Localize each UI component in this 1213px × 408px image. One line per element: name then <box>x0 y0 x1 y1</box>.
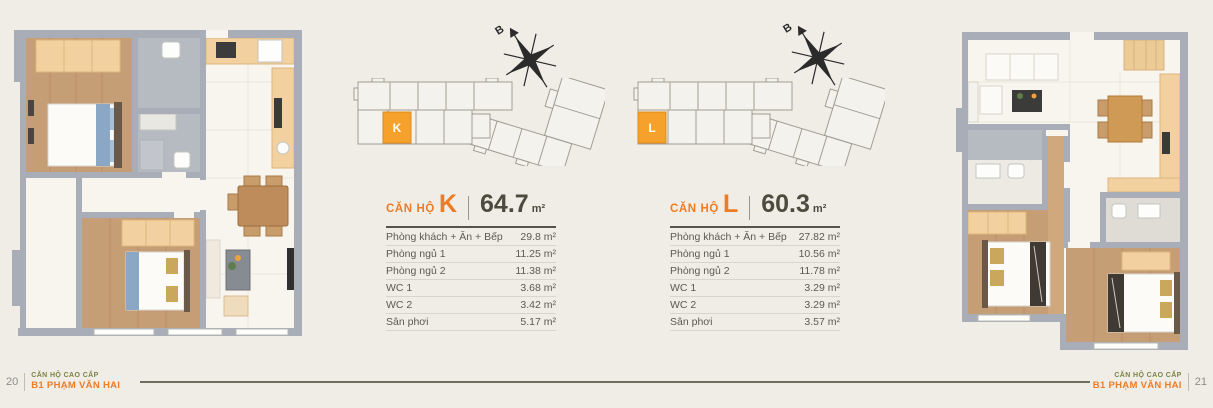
keyplan-unit-letter: K <box>393 121 402 135</box>
room-area: 10.56 m² <box>799 248 840 260</box>
footer-project-name: B1 PHẠM VĂN HAI <box>1093 380 1182 391</box>
room-label: WC 1 <box>670 282 696 294</box>
table-row: WC 13.29 m² <box>670 280 840 297</box>
footer-divider <box>24 373 25 391</box>
keyplan-unit-letter: L <box>648 121 655 135</box>
room-label: Phòng ngủ 1 <box>670 248 730 260</box>
room-area: 3.68 m² <box>520 282 556 294</box>
unit-title: CĂN HỘ L 60.3 m² <box>670 194 840 228</box>
table-row: WC 23.42 m² <box>386 297 556 314</box>
compass-icon: B <box>782 12 852 94</box>
keyplan-unit-marker: K <box>383 112 411 143</box>
room-area: 3.29 m² <box>804 299 840 311</box>
brochure-spread: K B CĂN HỘ K 64.7 <box>0 0 1213 408</box>
room-area: 11.25 m² <box>515 248 556 260</box>
table-row: Phòng ngủ 211.78 m² <box>670 263 840 280</box>
unit-total-area: 64.7 <box>480 194 529 214</box>
table-row: Phòng khách + Ăn + Bếp29.8 m² <box>386 229 556 246</box>
unit-letter: K <box>439 194 457 214</box>
room-label: WC 2 <box>670 299 696 311</box>
table-row: Sân phơi5.17 m² <box>386 314 556 331</box>
page-number-right: 21 <box>1195 376 1207 388</box>
table-row: WC 13.68 m² <box>386 280 556 297</box>
room-area: 11.78 m² <box>799 265 840 277</box>
footer-text: CĂN HỘ CAO CẤP B1 PHẠM VĂN HAI <box>31 372 120 391</box>
room-area: 3.57 m² <box>804 316 840 328</box>
room-area-table: Phòng khách + Ăn + Bếp27.82 m² Phòng ngủ… <box>670 229 840 331</box>
footer-divider <box>1188 373 1189 391</box>
loggia-deck <box>1124 40 1164 70</box>
headboard <box>982 240 988 308</box>
sofa <box>986 54 1058 80</box>
footer-series-title: CĂN HỘ CAO CẤP <box>1093 372 1182 380</box>
unit-title: CĂN HỘ K 64.7 m² <box>386 194 556 228</box>
keyplan-unit-k: K <box>352 78 605 166</box>
room-area: 11.38 m² <box>515 265 556 277</box>
headboard <box>1174 272 1180 334</box>
room-label: WC 1 <box>386 282 412 294</box>
windows <box>94 329 288 335</box>
coffee-table <box>1012 90 1042 112</box>
page-number-left: 20 <box>6 376 18 388</box>
unit-info-k: CĂN HỘ K 64.7 m² Phòng khách + Ăn + Bếp2… <box>386 194 556 331</box>
room-label: Phòng ngủ 2 <box>670 265 730 277</box>
room-area: 27.82 m² <box>799 231 840 243</box>
floorplan-unit-k-image <box>10 12 310 350</box>
room-area: 3.42 m² <box>520 299 556 311</box>
unit-title-prefix: CĂN HỘ <box>670 203 719 215</box>
title-divider <box>749 196 750 220</box>
footer-rule <box>140 381 1090 383</box>
room-area: 3.29 m² <box>804 282 840 294</box>
unit-area-unit: m² <box>813 203 826 215</box>
footer-left: 20 CĂN HỘ CAO CẤP B1 PHẠM VĂN HAI <box>6 372 120 391</box>
unit-total-area: 60.3 <box>761 194 810 214</box>
bathroom2 <box>1106 198 1180 242</box>
footer-project-name: B1 PHẠM VĂN HAI <box>31 380 120 391</box>
dining-table <box>1108 96 1142 142</box>
room-area: 29.8 m² <box>520 231 556 243</box>
keyplan-unit-marker: L <box>638 112 666 143</box>
room-label: Phòng khách + Ăn + Bếp <box>386 231 503 243</box>
room-label: Phòng ngủ 2 <box>386 265 446 277</box>
room-label: WC 2 <box>386 299 412 311</box>
room-label: Phòng khách + Ăn + Bếp <box>670 231 787 243</box>
unit-info-l: CĂN HỘ L 60.3 m² Phòng khách + Ăn + Bếp2… <box>670 194 840 331</box>
compass-icon: B <box>494 14 564 96</box>
unit-letter: L <box>723 194 738 214</box>
bedroom2-furniture <box>122 220 194 312</box>
room-label: Sân phơi <box>386 316 429 328</box>
footer-text: CĂN HỘ CAO CẤP B1 PHẠM VĂN HAI <box>1093 372 1182 391</box>
compass-north-label: B <box>782 21 794 35</box>
room-area-table: Phòng khách + Ăn + Bếp29.8 m² Phòng ngủ … <box>386 229 556 331</box>
title-divider <box>468 196 469 220</box>
table-row: Phòng khách + Ăn + Bếp27.82 m² <box>670 229 840 246</box>
headboard <box>114 102 122 168</box>
table-row: Phòng ngủ 110.56 m² <box>670 246 840 263</box>
room-area: 5.17 m² <box>520 316 556 328</box>
table-row: Phòng ngủ 111.25 m² <box>386 246 556 263</box>
table-row: Sân phơi3.57 m² <box>670 314 840 331</box>
unit-area-unit: m² <box>532 203 545 215</box>
compass-north-label: B <box>494 23 506 37</box>
bathroom1 <box>968 130 1044 204</box>
headboard <box>184 250 190 312</box>
footer-series-title: CĂN HỘ CAO CẤP <box>31 372 120 380</box>
room-label: Phòng ngủ 1 <box>386 248 446 260</box>
floorplan-unit-l-image <box>950 12 1208 357</box>
room-label: Sân phơi <box>670 316 713 328</box>
table-row: WC 23.29 m² <box>670 297 840 314</box>
table-row: Phòng ngủ 211.38 m² <box>386 263 556 280</box>
footer-right: CĂN HỘ CAO CẤP B1 PHẠM VĂN HAI 21 <box>1093 372 1207 391</box>
tv <box>287 248 294 290</box>
unit-title-prefix: CĂN HỘ <box>386 203 435 215</box>
